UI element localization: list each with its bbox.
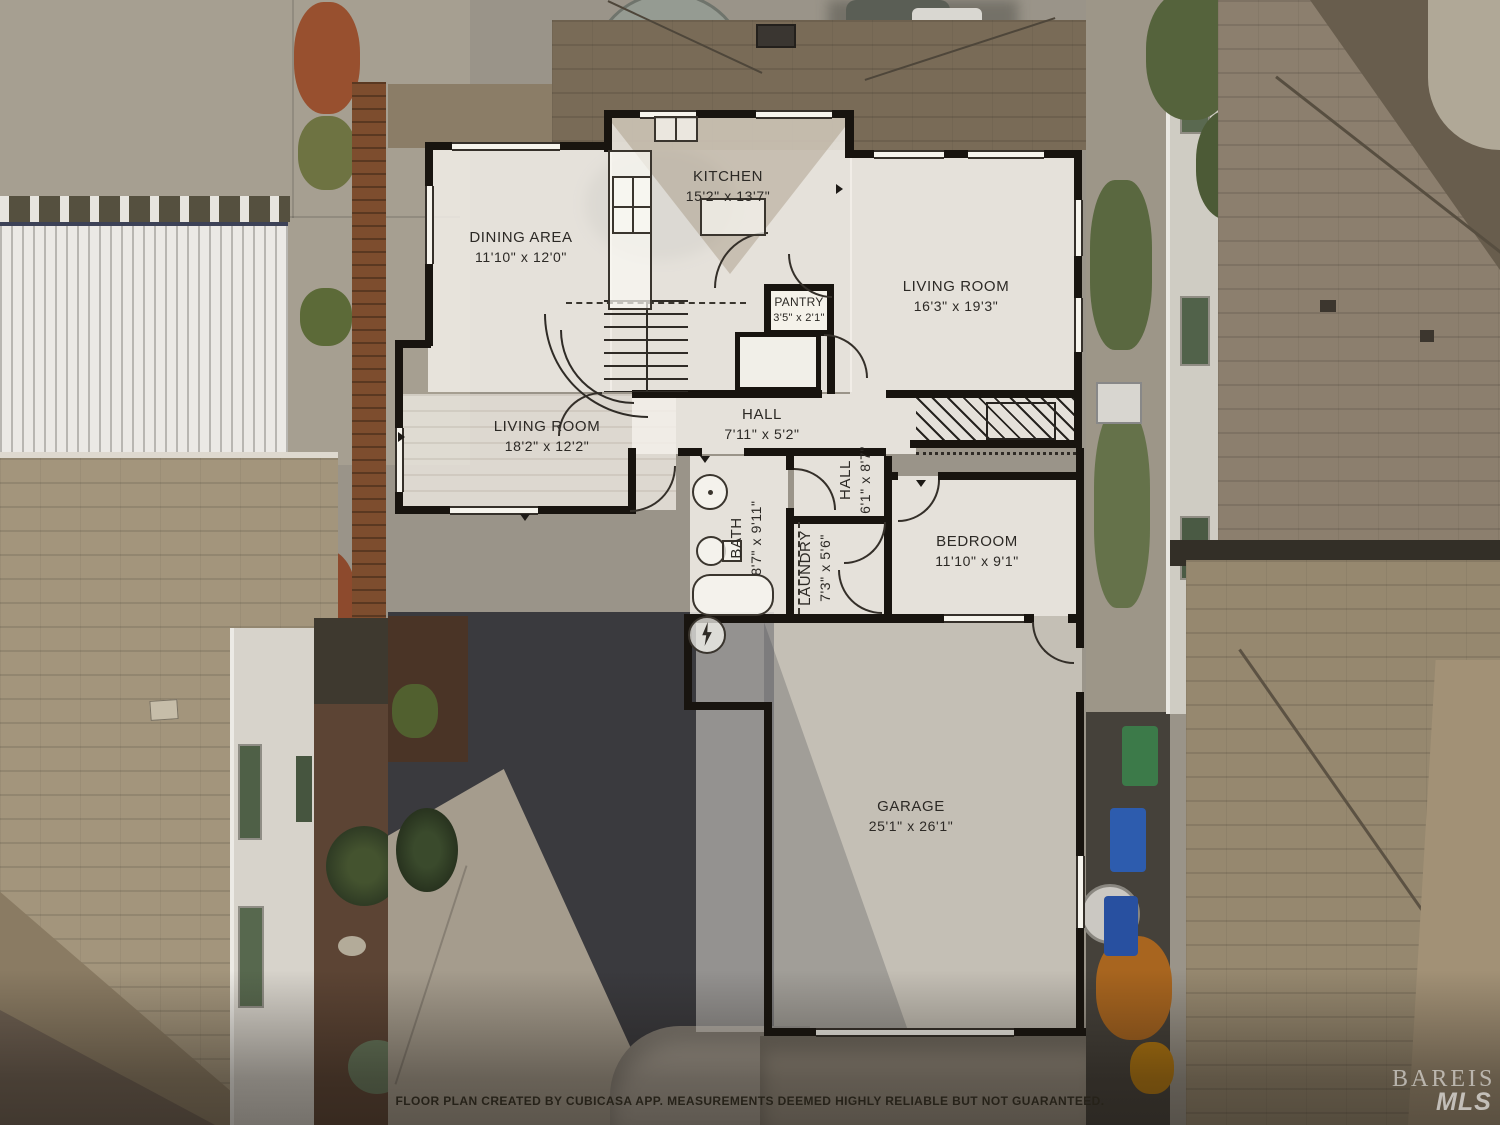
shrub bbox=[392, 684, 438, 738]
bath-sink-drain bbox=[708, 490, 713, 495]
room-dims: 25'1" x 26'1" bbox=[869, 817, 954, 835]
wall bbox=[910, 440, 1082, 448]
blue-trash-bin bbox=[1110, 808, 1146, 872]
room-label-laundry: LAUNDRY 7'3" x 5'6" bbox=[796, 530, 834, 606]
window-marker bbox=[1074, 200, 1083, 256]
cabinet-dashed-line bbox=[566, 302, 746, 304]
blue-trash-bin bbox=[1104, 896, 1138, 956]
wall bbox=[1076, 692, 1084, 856]
room-name: PANTRY bbox=[773, 295, 824, 311]
wall bbox=[786, 508, 794, 622]
room-dims: 18'2" x 12'2" bbox=[494, 437, 601, 455]
room-dims: 11'10" x 12'0" bbox=[469, 248, 572, 266]
pantry-wall bbox=[764, 284, 771, 336]
room-dims: 11'10" x 9'1" bbox=[935, 552, 1019, 570]
room-label-garage: GARAGE 25'1" x 26'1" bbox=[869, 797, 954, 835]
window-marker bbox=[968, 150, 1044, 159]
room-label-bath: BATH 8'7" x 9'11" bbox=[727, 500, 765, 575]
room-label-hall-vertical: HALL 6'1" x 8'7" bbox=[836, 446, 874, 514]
window bbox=[1180, 296, 1210, 366]
wall bbox=[786, 456, 794, 470]
roof-vent bbox=[1420, 330, 1434, 342]
room-name: LIVING ROOM bbox=[494, 417, 601, 437]
patio-joint-line bbox=[292, 0, 294, 218]
wall bbox=[884, 456, 892, 622]
stair-dotted-line bbox=[916, 452, 1076, 455]
aerial-floor-plan-image: KITCHEN 15'2" x 13'7" DINING AREA 11'10"… bbox=[0, 0, 1500, 1125]
ac-unit bbox=[1096, 382, 1142, 424]
room-dims: 8'7" x 9'11" bbox=[747, 500, 765, 575]
room-dims: 3'5" x 2'1" bbox=[773, 311, 824, 325]
wall bbox=[1074, 256, 1082, 298]
autumn-bush bbox=[294, 2, 360, 114]
door-marker-triangle bbox=[836, 184, 843, 194]
hedge bbox=[1090, 180, 1152, 350]
patio-cover-posts bbox=[0, 196, 290, 222]
window-marker bbox=[1076, 856, 1085, 928]
wood-fence bbox=[352, 82, 386, 704]
green-bush bbox=[300, 288, 352, 346]
room-name: LAUNDRY bbox=[796, 530, 816, 606]
room-dims: 15'2" x 13'7" bbox=[686, 187, 771, 205]
door-marker-triangle bbox=[916, 480, 926, 487]
wall bbox=[1076, 448, 1084, 622]
room-name: LIVING ROOM bbox=[903, 277, 1010, 297]
window-marker bbox=[452, 142, 560, 151]
room-dims: 7'11" x 5'2" bbox=[724, 425, 799, 443]
window-marker bbox=[756, 110, 832, 119]
wall bbox=[938, 472, 1084, 480]
kitchen-sink-divider bbox=[675, 118, 677, 140]
window-marker bbox=[425, 186, 434, 264]
room-dims: 16'3" x 19'3" bbox=[903, 297, 1010, 315]
door-marker-triangle bbox=[700, 456, 710, 463]
room-name: DINING AREA bbox=[469, 228, 572, 248]
roof-vent bbox=[1320, 300, 1336, 312]
green-bush bbox=[298, 116, 356, 190]
mls-watermark-mls: MLS bbox=[1436, 1088, 1492, 1117]
side-yard-shade bbox=[314, 618, 398, 706]
dark-grass-plant bbox=[396, 808, 458, 892]
roof-vent bbox=[149, 699, 178, 721]
wall bbox=[886, 390, 1082, 398]
room-dims: 6'1" x 8'7" bbox=[856, 446, 874, 514]
window bbox=[238, 744, 262, 840]
wall bbox=[1074, 352, 1082, 396]
room-name: GARAGE bbox=[869, 797, 954, 817]
room-name: KITCHEN bbox=[686, 167, 771, 187]
wall bbox=[1074, 150, 1082, 200]
bathtub bbox=[692, 574, 774, 616]
subject-roof-edge bbox=[388, 84, 568, 148]
white-metal-roof bbox=[0, 222, 288, 458]
room-label-pantry: PANTRY 3'5" x 2'1" bbox=[773, 295, 824, 325]
room-label-kitchen: KITCHEN 15'2" x 13'7" bbox=[686, 167, 771, 205]
wall bbox=[1074, 396, 1082, 448]
rock bbox=[338, 936, 366, 956]
window-marker bbox=[944, 614, 1024, 623]
room-name: HALL bbox=[836, 446, 856, 514]
room-label-bedroom: BEDROOM 11'10" x 9'1" bbox=[935, 532, 1019, 570]
stair-hatch-inner-box bbox=[986, 402, 1056, 440]
green-trash-bin bbox=[1122, 726, 1158, 786]
room-name: HALL bbox=[724, 405, 799, 425]
stove bbox=[612, 176, 652, 234]
room-name: BEDROOM bbox=[935, 532, 1019, 552]
window-marker bbox=[1074, 298, 1083, 352]
window bbox=[296, 756, 312, 822]
room-label-hall: HALL 7'11" x 5'2" bbox=[724, 405, 799, 443]
wall bbox=[684, 702, 772, 710]
room-dims: 7'3" x 5'6" bbox=[816, 530, 834, 606]
door-marker-triangle bbox=[398, 432, 405, 442]
room-label-living-room-main: LIVING ROOM 16'3" x 19'3" bbox=[903, 277, 1010, 315]
window-marker bbox=[874, 150, 944, 159]
chimney bbox=[756, 24, 796, 48]
room-name: BATH bbox=[727, 500, 747, 575]
room-fill-closet bbox=[735, 332, 821, 392]
room-fill-living-main bbox=[850, 152, 1076, 394]
wall bbox=[678, 448, 702, 456]
wall bbox=[604, 110, 612, 152]
door-marker-triangle bbox=[520, 514, 530, 521]
hedge bbox=[1094, 408, 1150, 608]
room-label-living-room-second: LIVING ROOM 18'2" x 12'2" bbox=[494, 417, 601, 455]
wall bbox=[884, 472, 898, 480]
room-label-dining-area: DINING AREA 11'10" x 12'0" bbox=[469, 228, 572, 266]
stairs-winder-arc bbox=[560, 330, 634, 404]
disclaimer-text: FLOOR PLAN CREATED BY CUBICASA APP. MEAS… bbox=[0, 1094, 1500, 1108]
